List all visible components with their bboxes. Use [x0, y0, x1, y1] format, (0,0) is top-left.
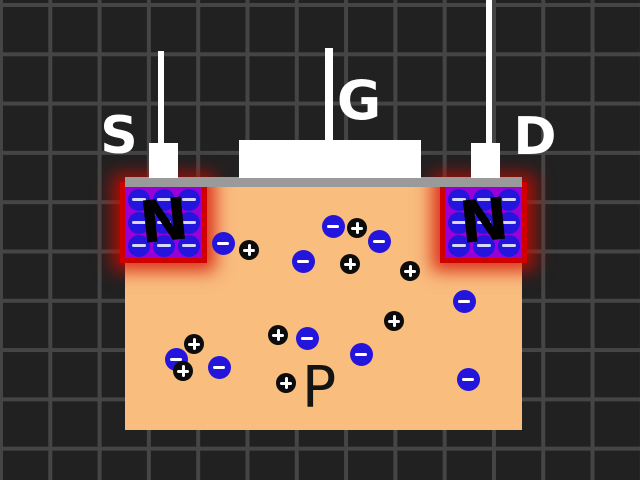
hole-particle: [184, 334, 204, 354]
plus-icon: [356, 222, 359, 234]
drain-label: D: [513, 111, 556, 163]
electron-particle: [322, 215, 345, 238]
electron-particle: [350, 343, 373, 366]
minus-icon: [170, 358, 182, 361]
source-wire: [158, 51, 164, 146]
plus-icon: [182, 365, 185, 377]
n-region-drain: N: [445, 187, 522, 258]
plus-icon: [409, 265, 412, 277]
minus-icon: [297, 260, 309, 263]
minus-icon: [373, 240, 385, 243]
drain-contact: [471, 143, 500, 178]
hole-particle: [268, 325, 288, 345]
drain-wire: [486, 0, 492, 146]
electron-particle: [453, 290, 476, 313]
substrate-label: P: [302, 359, 336, 416]
minus-icon: [355, 353, 367, 356]
source-label: S: [100, 110, 137, 162]
electron-particle: [212, 232, 235, 255]
gate-label: G: [337, 74, 381, 128]
source-contact: [149, 143, 178, 178]
electron-particle: [208, 356, 231, 379]
hole-particle: [340, 254, 360, 274]
n-region-label: N: [456, 189, 510, 252]
plus-icon: [285, 377, 288, 389]
hole-particle: [276, 373, 296, 393]
hole-particle: [384, 311, 404, 331]
plus-icon: [393, 315, 396, 327]
electron-particle: [296, 327, 319, 350]
minus-icon: [462, 378, 474, 381]
n-region-source: N: [125, 187, 202, 258]
oxide-layer: [125, 177, 522, 187]
plus-icon: [277, 329, 280, 341]
minus-icon: [213, 366, 225, 369]
minus-icon: [217, 242, 229, 245]
minus-icon: [301, 337, 313, 340]
gate-wire: [325, 48, 333, 143]
plus-icon: [349, 258, 352, 270]
plus-icon: [193, 338, 196, 350]
gate-electrode: [239, 140, 421, 178]
hole-particle: [173, 361, 193, 381]
electron-particle: [368, 230, 391, 253]
hole-particle: [239, 240, 259, 260]
hole-particle: [400, 261, 420, 281]
minus-icon: [327, 225, 339, 228]
diagram-canvas: S G D N N P: [0, 0, 640, 480]
minus-icon: [458, 300, 470, 303]
electron-particle: [292, 250, 315, 273]
plus-icon: [248, 244, 251, 256]
electron-particle: [457, 368, 480, 391]
n-region-label: N: [136, 189, 190, 252]
hole-particle: [347, 218, 367, 238]
